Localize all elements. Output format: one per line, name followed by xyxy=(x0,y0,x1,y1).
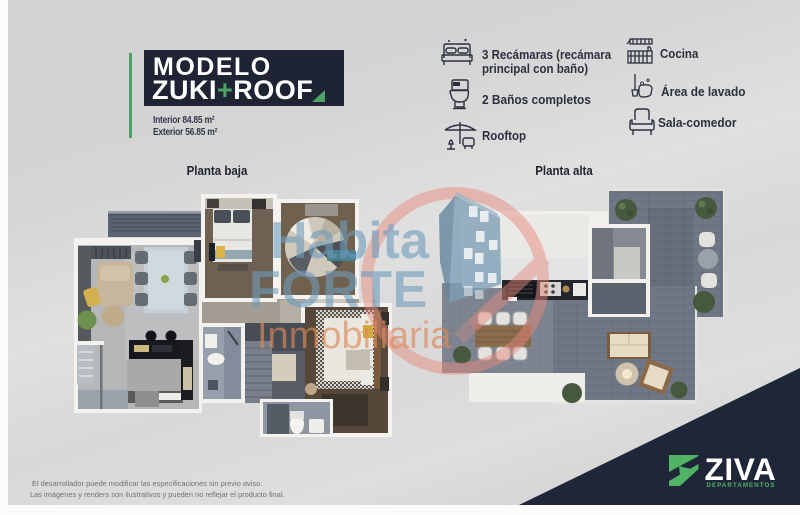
svg-text:FORTE: FORTE xyxy=(249,261,428,319)
svg-text:Inmobiliaria: Inmobiliaria xyxy=(257,315,452,357)
svg-text:DEPARTAMENTOS: DEPARTAMENTOS xyxy=(707,482,776,489)
